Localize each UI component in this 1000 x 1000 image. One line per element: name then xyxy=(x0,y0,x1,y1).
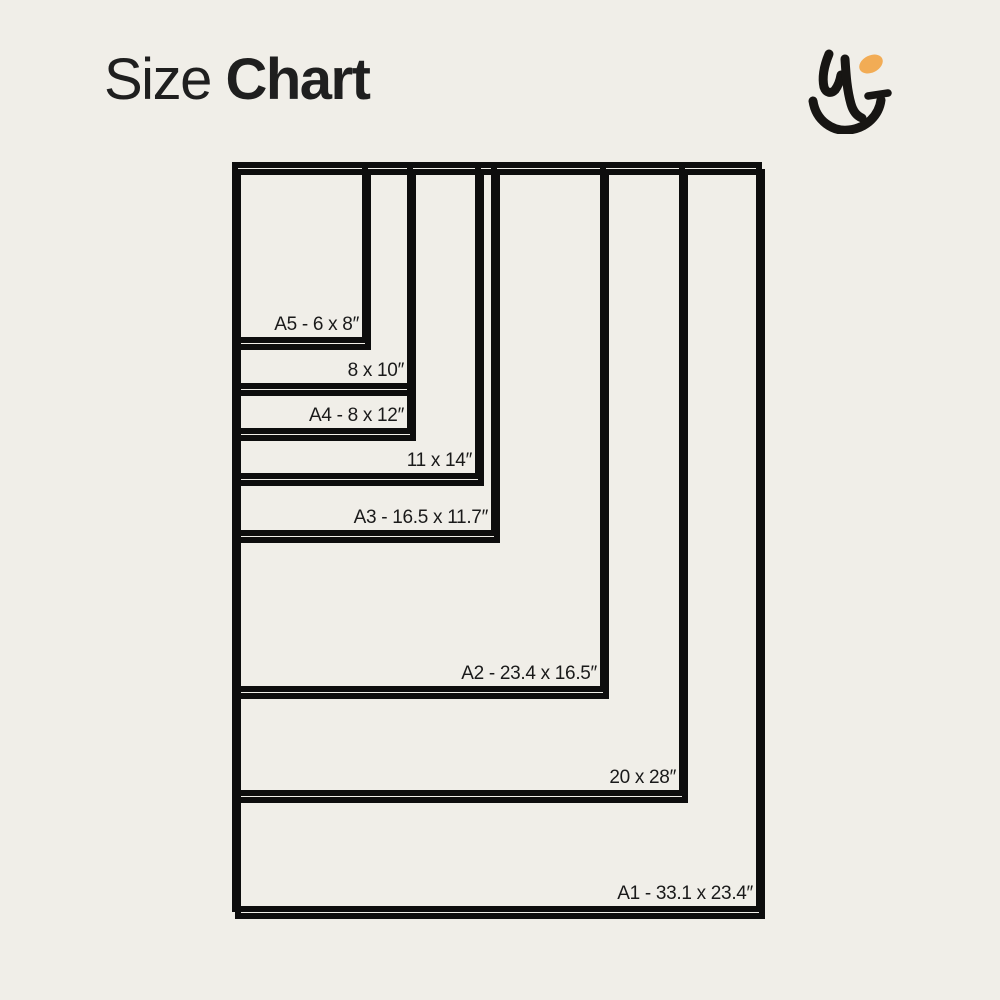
size-rect-A1: A1 - 33.1 x 23.4″ xyxy=(232,162,762,912)
size-comparison-figure: A5 - 6 x 8″8 x 10″A4 - 8 x 12″11 x 14″A3… xyxy=(0,0,1000,1000)
size-label-A1: A1 - 33.1 x 23.4″ xyxy=(617,883,753,905)
size-chart-page: Size Chart A5 - 6 x 8″8 x 10″A4 - 8 x 12… xyxy=(0,0,1000,1000)
